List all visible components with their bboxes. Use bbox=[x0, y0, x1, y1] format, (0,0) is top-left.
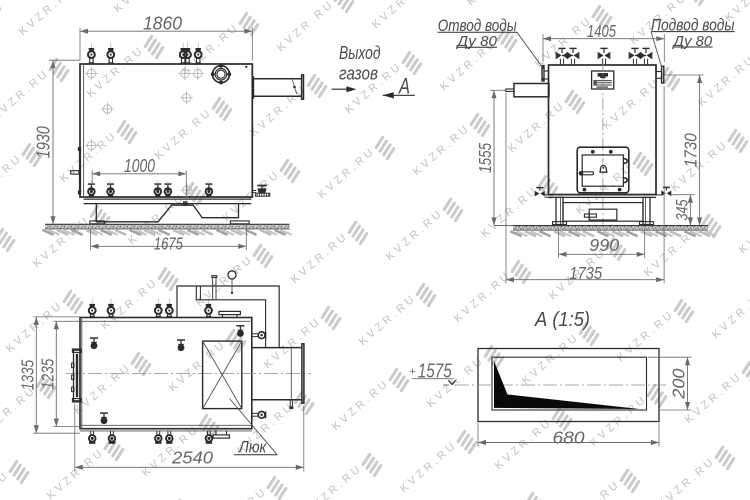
svg-text:Выход: Выход bbox=[339, 42, 381, 63]
svg-text:А (1:5): А (1:5) bbox=[534, 309, 590, 331]
svg-text:1000: 1000 bbox=[124, 156, 155, 176]
svg-text:Люк: Люк bbox=[238, 438, 267, 456]
svg-text:1235: 1235 bbox=[37, 358, 57, 389]
svg-text:345: 345 bbox=[673, 199, 692, 220]
svg-text:200: 200 bbox=[669, 368, 689, 399]
svg-text:1555: 1555 bbox=[475, 143, 495, 173]
svg-text:1735: 1735 bbox=[569, 263, 602, 283]
svg-text:1930: 1930 bbox=[34, 126, 54, 158]
svg-text:1675: 1675 bbox=[154, 234, 183, 254]
svg-text:1860: 1860 bbox=[143, 14, 182, 34]
svg-text:газов: газов bbox=[339, 63, 378, 84]
svg-text:1335: 1335 bbox=[17, 360, 37, 391]
svg-text:680: 680 bbox=[553, 428, 585, 448]
svg-text:1575: 1575 bbox=[418, 361, 453, 383]
svg-text:990: 990 bbox=[589, 235, 619, 255]
svg-text:2540: 2540 bbox=[171, 448, 213, 468]
svg-text:+: + bbox=[409, 366, 416, 378]
svg-text:1730: 1730 bbox=[681, 133, 701, 167]
svg-text:1405: 1405 bbox=[587, 21, 616, 41]
